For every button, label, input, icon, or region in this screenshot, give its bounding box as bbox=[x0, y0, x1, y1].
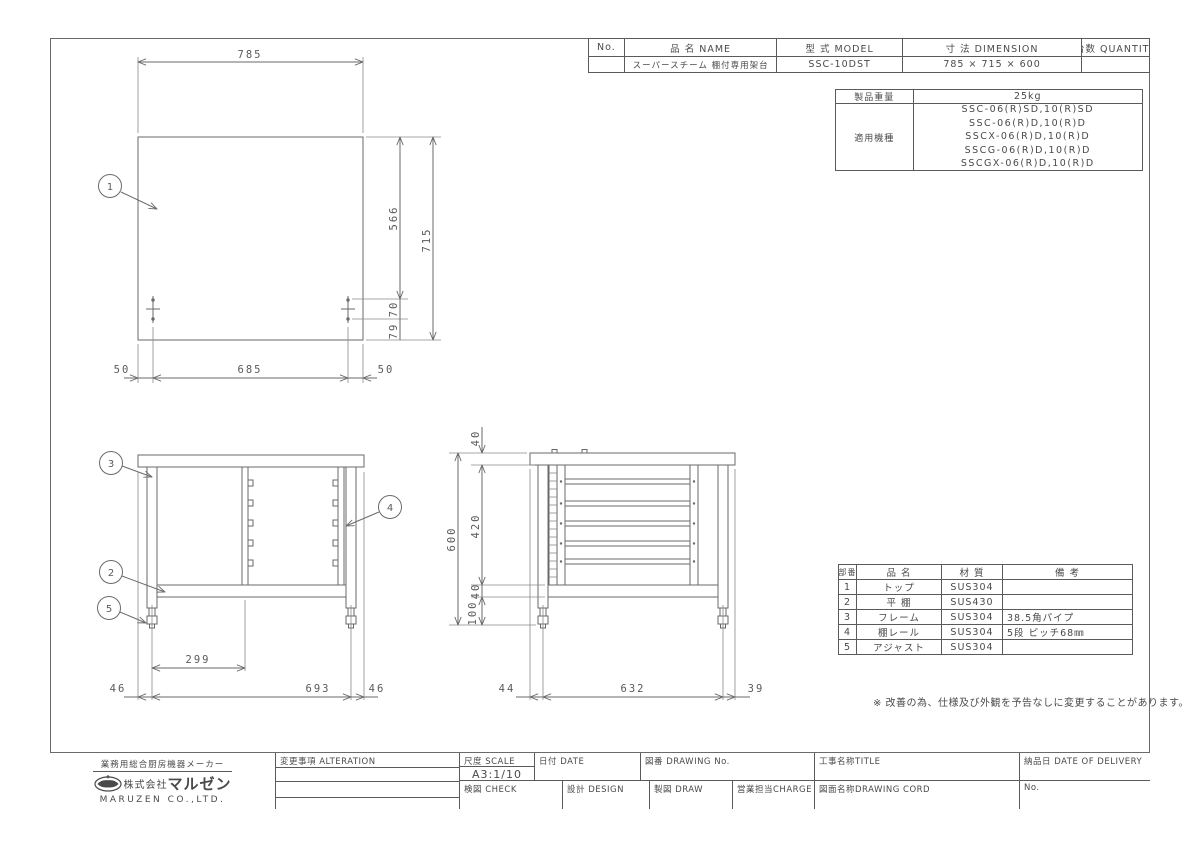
dimension-value: 785 × 715 × 600 bbox=[903, 57, 1082, 72]
value-no bbox=[589, 57, 625, 72]
dim-label: 39 bbox=[748, 683, 765, 695]
company-name-en: MARUZEN CO.,LTD. bbox=[100, 795, 226, 805]
balloon-2: 2 bbox=[100, 561, 166, 593]
dim-label: 600 bbox=[446, 527, 458, 552]
alteration-row bbox=[276, 768, 459, 782]
col-no-header: No. bbox=[589, 39, 625, 56]
alteration-block: 変更事項 ALTERATION bbox=[276, 753, 460, 809]
company-block: 業務用総合厨房機器メーカー 株式会社 マルゼン MARUZEN CO.,LTD. bbox=[50, 753, 276, 809]
balloon-4: 4 bbox=[346, 496, 402, 527]
model-item: SSC-06(R)SD,10(R)SD bbox=[961, 104, 1094, 117]
scale-label: 尺度 SCALE bbox=[460, 753, 534, 767]
product-name: スーパースチーム 棚付専用架台 bbox=[625, 57, 777, 72]
revision-note: ※ 改善の為、仕様及び外観を予告なしに変更することがあります。 bbox=[873, 694, 1137, 709]
applicable-models-label: 適用機種 bbox=[836, 104, 914, 170]
svg-text:1: 1 bbox=[107, 182, 113, 193]
col-dimension-header: 寸 法 DIMENSION bbox=[903, 39, 1082, 56]
col-quantity-header: 台数 QUANTITY bbox=[1082, 39, 1149, 56]
balloon-1: 1 bbox=[99, 175, 158, 210]
dim-label: 79 bbox=[388, 323, 400, 340]
scale-cell: 尺度 SCALE A3:1/10 bbox=[460, 753, 535, 780]
scale-value: A3:1/10 bbox=[460, 767, 534, 781]
parts-col-no: 部番 bbox=[839, 565, 857, 579]
title-table: No. 品 名 NAME 型 式 MODEL 寸 法 DIMENSION 台数 … bbox=[588, 38, 1150, 73]
adjuster-foot-left bbox=[147, 605, 157, 650]
dim-label: 46 bbox=[369, 683, 386, 695]
dim-label: 44 bbox=[499, 683, 516, 695]
parts-col-name: 品 名 bbox=[857, 565, 942, 579]
model-item: SSCX-06(R)D,10(R)D bbox=[965, 130, 1090, 144]
table-row: 1 トップ SUS304 bbox=[839, 580, 1132, 595]
weight-value: 25kg bbox=[914, 90, 1143, 103]
rail-notches bbox=[549, 473, 557, 577]
dim-label: 46 bbox=[110, 683, 127, 695]
dim-label: 685 bbox=[238, 364, 263, 376]
balloon-5: 5 bbox=[98, 597, 147, 624]
table-row: 2 平 棚 SUS430 bbox=[839, 595, 1132, 610]
model-number: SSC-10DST bbox=[777, 57, 903, 72]
table-row: 4 棚レール SUS304 5段 ピッチ68㎜ bbox=[839, 625, 1132, 640]
dim-label: 100 bbox=[467, 601, 479, 626]
dim-label: 566 bbox=[388, 206, 400, 231]
dim-label: 70 bbox=[388, 301, 400, 318]
adjuster-foot-right bbox=[346, 605, 356, 650]
plan-view: 785 566 70 79 715 bbox=[99, 49, 442, 383]
parts-col-material: 材 質 bbox=[942, 565, 1003, 579]
adjuster-foot-right bbox=[718, 605, 728, 650]
draw-cell: 製図 DRAW bbox=[650, 781, 733, 809]
company-logo bbox=[93, 774, 123, 792]
shelf-rails bbox=[560, 479, 695, 564]
svg-text:5: 5 bbox=[106, 604, 112, 615]
drawing-cord-cell: 図面名称DRAWING CORD bbox=[815, 781, 1020, 809]
company-name-prefix: 株式会社 bbox=[123, 776, 167, 791]
model-item: SSC-06(R)D,10(R)D bbox=[969, 117, 1086, 131]
drawing-sheet: 785 566 70 79 715 bbox=[0, 0, 1200, 849]
side-view: 40 420 40 100 600 44 632 39 bbox=[446, 427, 764, 700]
svg-text:4: 4 bbox=[387, 503, 393, 514]
dim-label: 693 bbox=[306, 683, 331, 695]
col-model-header: 型 式 MODEL bbox=[777, 39, 903, 56]
dim-label: 299 bbox=[186, 654, 211, 666]
design-cell: 設計 DESIGN bbox=[563, 781, 650, 809]
dim-label: 715 bbox=[421, 228, 433, 253]
dim-label: 420 bbox=[470, 514, 482, 539]
project-title-cell: 工事名称TITLE bbox=[815, 753, 1020, 780]
dim-label: 50 bbox=[378, 364, 395, 376]
col-name-header: 品 名 NAME bbox=[625, 39, 777, 56]
model-item: SSCG-06(R)D,10(R)D bbox=[965, 144, 1091, 158]
date-cell: 日付 DATE bbox=[535, 753, 641, 780]
dim-label: 50 bbox=[114, 364, 131, 376]
adjuster-foot-left bbox=[538, 605, 548, 650]
parts-table: 部番 品 名 材 質 備 考 1 トップ SUS304 2 平 棚 SUS430… bbox=[838, 564, 1133, 655]
dim-label: 40 bbox=[470, 430, 482, 447]
shelf-rail-tabs bbox=[248, 480, 338, 566]
table-row: 3 フレーム SUS304 38.5角パイプ bbox=[839, 610, 1132, 625]
delivery-date-cell: 納品日 DATE OF DELIVERY bbox=[1020, 753, 1150, 780]
company-tagline: 業務用総合厨房機器メーカー bbox=[93, 758, 233, 772]
drawing-no-cell: 図番 DRAWING No. bbox=[641, 753, 815, 780]
quantity-value bbox=[1082, 57, 1149, 72]
weight-label: 製品重量 bbox=[836, 90, 914, 103]
table-row: 5 アジャスト SUS304 bbox=[839, 640, 1132, 654]
title-block: 業務用総合厨房機器メーカー 株式会社 マルゼン MARUZEN CO.,LTD.… bbox=[50, 752, 1150, 808]
charge-cell: 営業担当CHARGE bbox=[733, 781, 815, 809]
front-view: 299 46 693 46 3 2 bbox=[98, 452, 402, 701]
delivery-no-cell: No. bbox=[1020, 781, 1150, 809]
svg-text:3: 3 bbox=[108, 459, 114, 470]
product-info-table: 製品重量 25kg 適用機種 SSC-06(R)SD,10(R)SD SSC-0… bbox=[835, 89, 1143, 171]
dim-label: 40 bbox=[470, 583, 482, 600]
mount-hole-left bbox=[146, 296, 160, 323]
alteration-row bbox=[276, 782, 459, 798]
check-cell: 検図 CHECK bbox=[460, 781, 563, 809]
model-item: SSCGX-06(R)D,10(R)D bbox=[961, 157, 1095, 170]
dim-label: 632 bbox=[621, 683, 646, 695]
parts-col-note: 備 考 bbox=[1003, 565, 1132, 579]
applicable-models-list: SSC-06(R)SD,10(R)SD SSC-06(R)D,10(R)D SS… bbox=[914, 104, 1143, 170]
svg-text:2: 2 bbox=[108, 568, 114, 579]
dim-label: 785 bbox=[238, 49, 263, 61]
alteration-label: 変更事項 ALTERATION bbox=[276, 753, 459, 768]
company-name: マルゼン bbox=[167, 773, 231, 794]
